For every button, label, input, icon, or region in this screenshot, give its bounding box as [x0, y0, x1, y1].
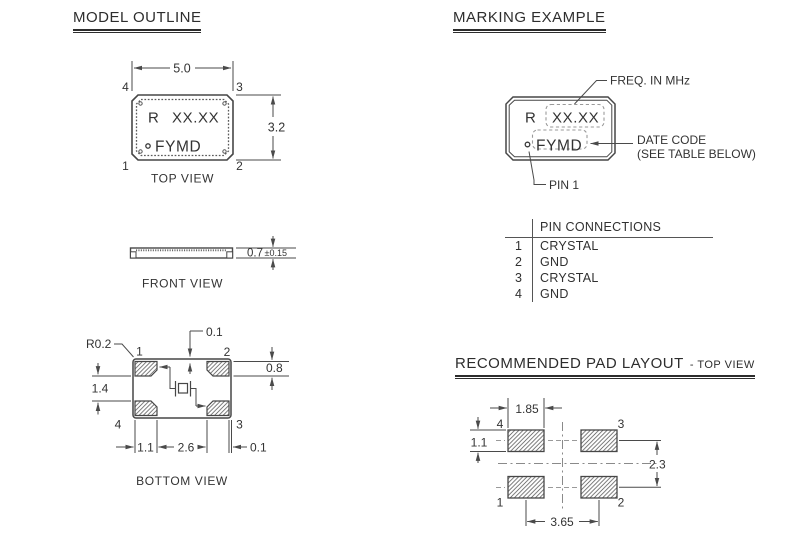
- dim-pad-width-label: 1.85: [515, 402, 539, 416]
- dim-pad-gap-horizontal-label: 2.6: [178, 441, 195, 455]
- pin-label-2: 2: [224, 345, 231, 359]
- marking-frequency: XX.XX: [552, 110, 599, 127]
- dim-thickness-label: 0.7: [247, 248, 263, 260]
- datecode-callout-line2: (SEE TABLE BELOW): [637, 147, 756, 161]
- pad-label-3: 3: [618, 417, 625, 431]
- pin-label-4: 4: [115, 418, 122, 432]
- pad-2: [207, 362, 229, 377]
- pad-3: [581, 430, 617, 452]
- marking-prefix: R: [148, 110, 159, 127]
- pad-4: [135, 401, 157, 416]
- pad-3: [207, 401, 229, 416]
- pin-label-3: 3: [236, 418, 243, 432]
- pad-label-2: 2: [618, 496, 625, 510]
- dim-pad-height-label: 0.8: [266, 361, 283, 375]
- front-view-drawing: 0.7 ±0.15 FRONT VIEW: [131, 236, 297, 291]
- freq-callout: FREQ. IN MHz: [610, 74, 690, 88]
- corner-castellation: [139, 102, 142, 105]
- top-view-label: TOP VIEW: [151, 172, 214, 186]
- dim-pad-offset-top-label: 0.1: [206, 325, 223, 339]
- top-view-drawing: R XX.XX FYMD 5.0 3.2 4 3 1 2 TOP VIEW: [122, 61, 285, 186]
- pin-label-2: 2: [236, 159, 243, 173]
- pad-1: [135, 362, 157, 377]
- dim-pad-width-label: 1.1: [137, 441, 154, 455]
- pad-1: [508, 477, 544, 499]
- pin1-callout: PIN 1: [549, 178, 579, 192]
- dim-pad-gap-vertical-label: 1.4: [92, 382, 109, 396]
- bottom-view-label: BOTTOM VIEW: [136, 474, 228, 488]
- marking-datecode: FYMD: [536, 138, 582, 155]
- dim-corner-radius-label: R0.2: [86, 337, 112, 351]
- bottom-view-drawing: R0.2 0.1 0.8 1.4: [86, 325, 289, 488]
- side-castellation: [131, 252, 137, 258]
- pad-layout-drawing: 1.85 1.1 2.3 3.65 4 3 1 2: [470, 398, 666, 529]
- pad-4: [508, 430, 544, 452]
- pad-label-1: 1: [497, 496, 504, 510]
- pin-label-4: 4: [122, 80, 129, 94]
- marking-example-drawing: R XX.XX FYMD FREQ. IN MHz DATE CODE (SEE…: [506, 74, 756, 193]
- corner-castellation: [139, 150, 142, 153]
- marking-datecode: FYMD: [155, 139, 201, 156]
- marking-frequency: XX.XX: [172, 110, 219, 127]
- pad-label-4: 4: [497, 417, 504, 431]
- corner-castellation: [223, 102, 226, 105]
- datecode-callout-line1: DATE CODE: [637, 133, 706, 147]
- dim-height-label: 3.2: [268, 121, 285, 135]
- radius-leader: [114, 344, 134, 357]
- dim-tolerance-label: ±0.15: [265, 248, 287, 258]
- datasheet-page: MODEL OUTLINE MARKING EXAMPLE RECOMMENDE…: [0, 0, 804, 546]
- pin-label-3: 3: [236, 80, 243, 94]
- pin1-dot: [525, 142, 530, 147]
- pin-label-1: 1: [136, 345, 143, 359]
- dim-pad-offset-right-label: 0.1: [250, 441, 267, 455]
- front-view-label: FRONT VIEW: [142, 277, 223, 291]
- pin1-dot: [146, 144, 150, 148]
- dim-pitch-horizontal-label: 3.65: [550, 515, 574, 529]
- marking-prefix: R: [525, 110, 536, 127]
- side-castellation: [227, 252, 233, 258]
- dim-width-label: 5.0: [173, 62, 190, 76]
- pad-2: [581, 477, 617, 499]
- drawing-canvas: R XX.XX FYMD 5.0 3.2 4 3 1 2 TOP VIEW: [0, 0, 804, 546]
- pin-label-1: 1: [122, 159, 129, 173]
- dim-pad-height-label: 1.1: [471, 436, 488, 450]
- dim-pitch-vertical-label: 2.3: [649, 458, 666, 472]
- corner-castellation: [223, 150, 226, 153]
